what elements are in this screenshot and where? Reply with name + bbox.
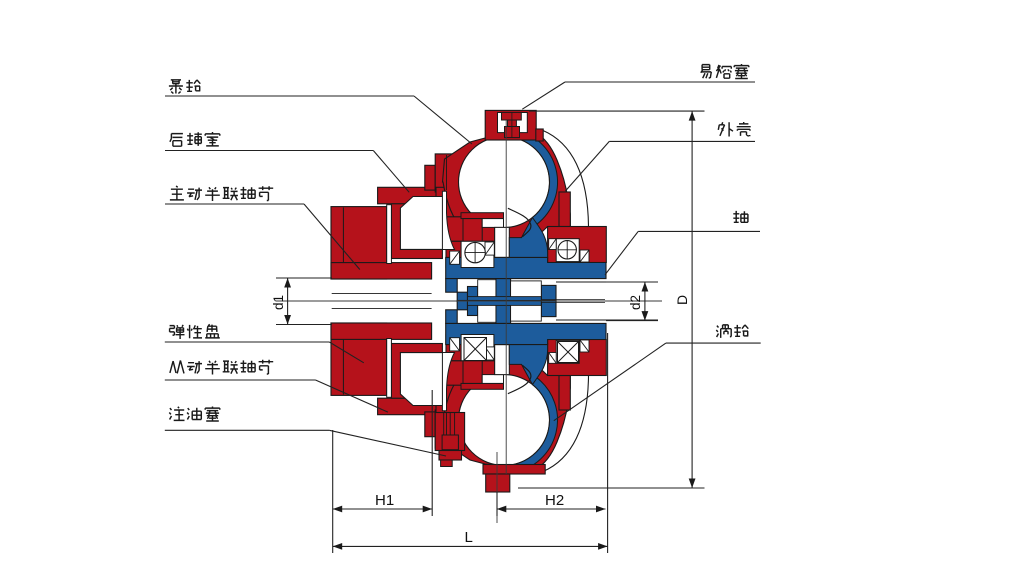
svg-text:L: L <box>465 529 473 546</box>
svg-text:D: D <box>674 295 690 305</box>
svg-text:H2: H2 <box>545 492 564 509</box>
svg-text:d2: d2 <box>628 295 643 310</box>
svg-text:H1: H1 <box>375 492 394 509</box>
svg-text:d1: d1 <box>271 295 286 310</box>
